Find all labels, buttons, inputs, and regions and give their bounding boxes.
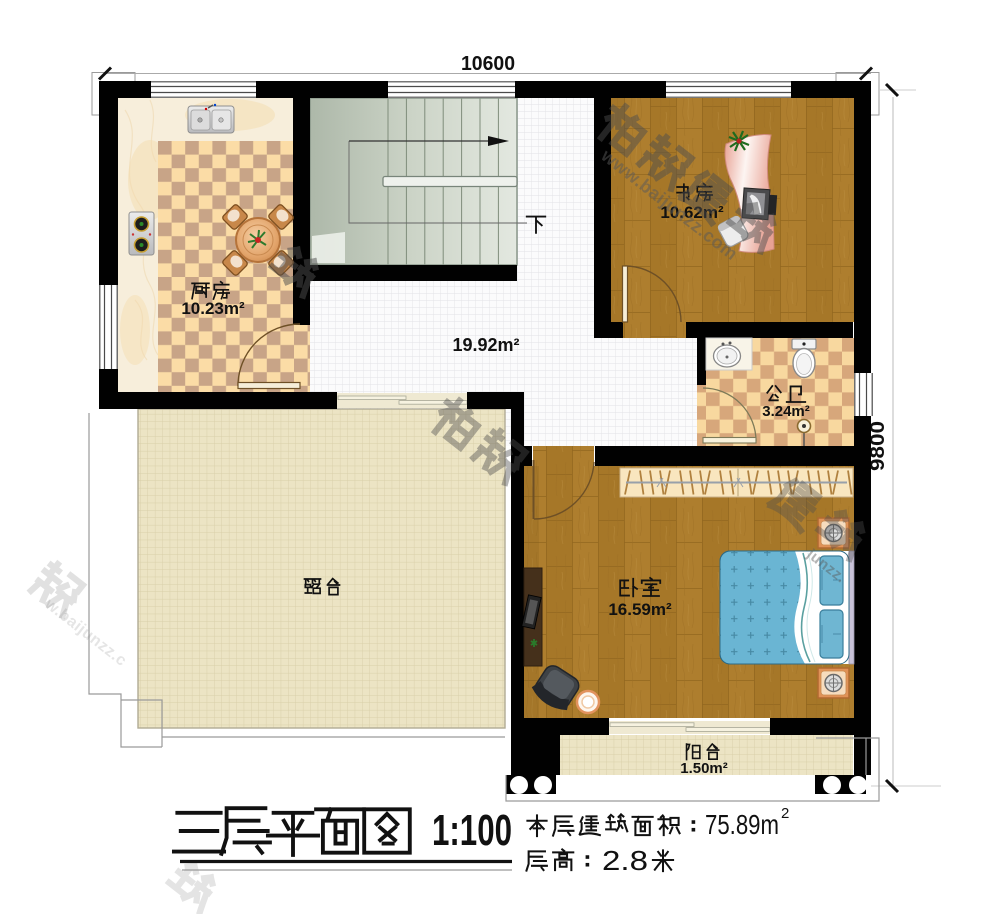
- svg-text:2.8: 2.8: [602, 845, 648, 876]
- svg-text:75.89m: 75.89m: [705, 809, 779, 840]
- svg-text:10.23m²: 10.23m²: [181, 299, 245, 318]
- svg-text:2: 2: [781, 805, 789, 822]
- svg-text:10600: 10600: [461, 53, 515, 75]
- svg-text:16.59m²: 16.59m²: [608, 600, 672, 619]
- svg-text:19.92m²: 19.92m²: [452, 335, 519, 355]
- svg-text:1:100: 1:100: [432, 806, 512, 855]
- svg-text:1.50m²: 1.50m²: [680, 760, 728, 777]
- svg-text:3.24m²: 3.24m²: [762, 403, 810, 420]
